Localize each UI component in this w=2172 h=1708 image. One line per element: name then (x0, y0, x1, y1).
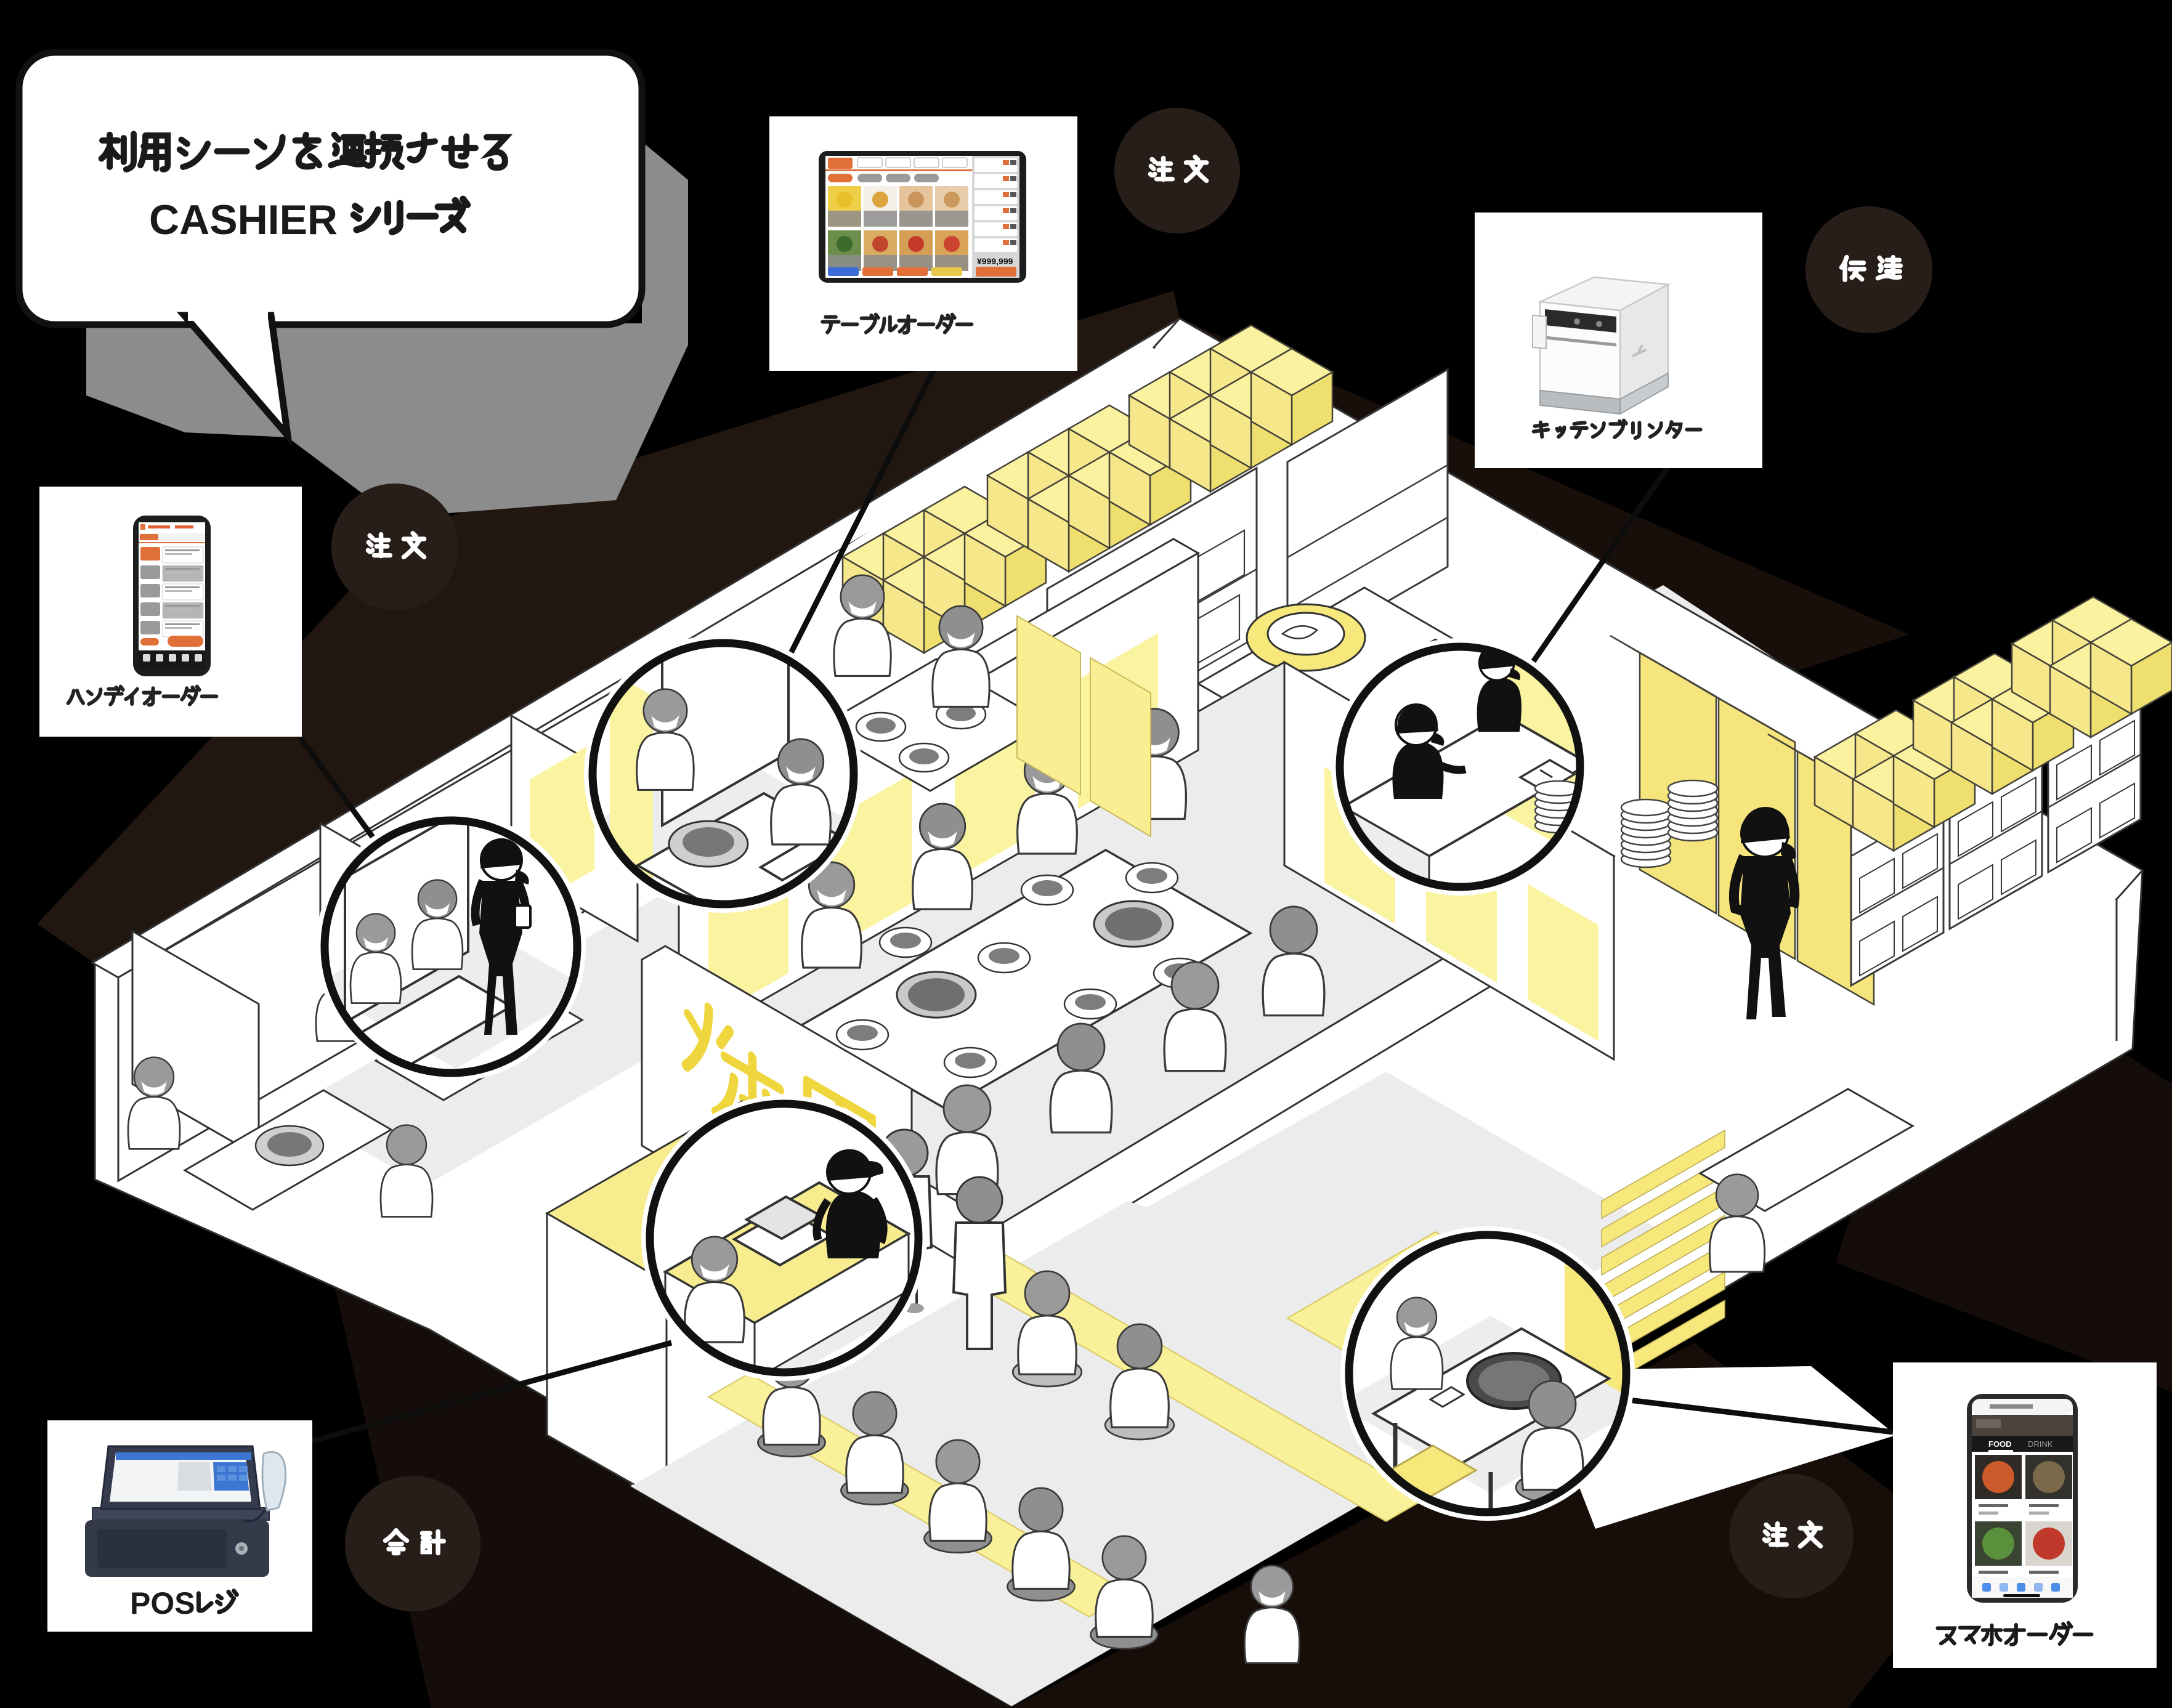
svg-text:DRINK: DRINK (2028, 1439, 2053, 1449)
svg-text:¥999,999: ¥999,999 (977, 256, 1013, 266)
svg-text:CASHIER: CASHIER (149, 196, 338, 243)
svg-text:FOOD: FOOD (1988, 1439, 2012, 1449)
svg-text:POS: POS (130, 1586, 195, 1621)
